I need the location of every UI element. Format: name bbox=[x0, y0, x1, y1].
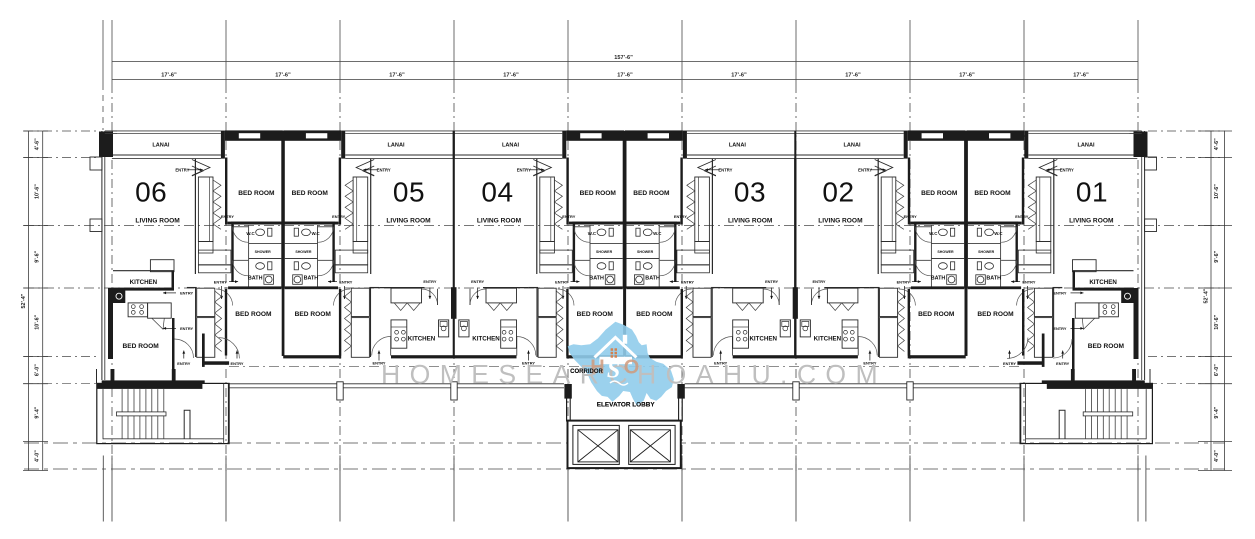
svg-text:ENTRY: ENTRY bbox=[1053, 291, 1066, 296]
svg-text:ENTRY: ENTRY bbox=[562, 214, 575, 219]
svg-text:ENTRY: ENTRY bbox=[904, 214, 917, 219]
svg-text:CORRIDOR: CORRIDOR bbox=[570, 369, 603, 375]
svg-text:BED ROOM: BED ROOM bbox=[238, 190, 275, 197]
svg-text:ENTRY: ENTRY bbox=[1053, 326, 1066, 331]
svg-text:17’-6”: 17’-6” bbox=[731, 73, 747, 79]
svg-text:BATH: BATH bbox=[645, 276, 660, 282]
svg-text:ENTRY: ENTRY bbox=[423, 279, 436, 284]
svg-text:01: 01 bbox=[1076, 176, 1108, 207]
svg-text:LIVING ROOM: LIVING ROOM bbox=[477, 218, 522, 225]
svg-text:H: H bbox=[590, 357, 604, 379]
svg-text:ENTRY: ENTRY bbox=[180, 326, 193, 331]
svg-text:W.C: W.C bbox=[994, 231, 1003, 236]
svg-text:ENTRY: ENTRY bbox=[897, 279, 910, 284]
svg-text:LIVING ROOM: LIVING ROOM bbox=[818, 218, 863, 225]
svg-text:LANAI: LANAI bbox=[152, 143, 170, 149]
svg-text:ENTRY: ENTRY bbox=[765, 279, 778, 284]
svg-text:9’-6”: 9’-6” bbox=[1214, 250, 1220, 262]
svg-text:06: 06 bbox=[135, 176, 167, 207]
svg-text:10’-6”: 10’-6” bbox=[35, 184, 41, 199]
svg-text:BED ROOM: BED ROOM bbox=[974, 190, 1011, 197]
svg-text:ENTRY: ENTRY bbox=[214, 279, 227, 284]
svg-text:ENTRY: ENTRY bbox=[1060, 168, 1074, 173]
svg-text:LIVING ROOM: LIVING ROOM bbox=[1069, 218, 1114, 225]
svg-text:ENTRY: ENTRY bbox=[332, 214, 345, 219]
svg-text:BED ROOM: BED ROOM bbox=[295, 311, 332, 318]
svg-text:4’-6”: 4’-6” bbox=[1214, 138, 1220, 150]
svg-text:BATH: BATH bbox=[248, 276, 263, 282]
svg-text:W.C: W.C bbox=[929, 231, 938, 236]
svg-text:BED ROOM: BED ROOM bbox=[636, 311, 673, 318]
svg-text:LIVING ROOM: LIVING ROOM bbox=[728, 218, 773, 225]
svg-text:BED ROOM: BED ROOM bbox=[577, 311, 614, 318]
svg-text:157’-6”: 157’-6” bbox=[614, 55, 633, 61]
svg-text:BATH: BATH bbox=[304, 276, 319, 282]
svg-text:10’-6”: 10’-6” bbox=[1214, 184, 1220, 199]
svg-text:LANAI: LANAI bbox=[843, 143, 861, 149]
svg-text:BATH: BATH bbox=[589, 276, 604, 282]
svg-text:S: S bbox=[607, 358, 620, 384]
svg-text:4’-0”: 4’-0” bbox=[35, 450, 41, 462]
svg-text:9’-6”: 9’-6” bbox=[35, 250, 41, 262]
svg-text:ENTRY: ENTRY bbox=[858, 168, 872, 173]
svg-text:ENTRY: ENTRY bbox=[180, 291, 193, 296]
svg-text:ENTRY: ENTRY bbox=[339, 279, 352, 284]
svg-text:LIVING ROOM: LIVING ROOM bbox=[135, 218, 180, 225]
svg-text:17’-6”: 17’-6” bbox=[503, 73, 519, 79]
svg-text:BED ROOM: BED ROOM bbox=[1088, 343, 1125, 350]
svg-text:ENTRY: ENTRY bbox=[1056, 361, 1069, 366]
svg-text:KITCHEN: KITCHEN bbox=[749, 335, 777, 342]
svg-text:ENTRY: ENTRY bbox=[681, 279, 694, 284]
svg-text:W.C: W.C bbox=[246, 231, 255, 236]
svg-text:ENTRY: ENTRY bbox=[517, 168, 531, 173]
svg-text:BED ROOM: BED ROOM bbox=[580, 190, 617, 197]
svg-text:17’-6”: 17’-6” bbox=[959, 73, 975, 79]
svg-text:BED ROOM: BED ROOM bbox=[977, 311, 1014, 318]
svg-text:04: 04 bbox=[481, 176, 513, 207]
svg-text:BATH: BATH bbox=[931, 276, 946, 282]
svg-text:52’-4”: 52’-4” bbox=[21, 293, 27, 308]
svg-text:ENTRY: ENTRY bbox=[718, 168, 732, 173]
svg-text:W.C: W.C bbox=[311, 231, 320, 236]
svg-text:LANAI: LANAI bbox=[1077, 143, 1095, 149]
svg-text:17’-6”: 17’-6” bbox=[389, 73, 405, 79]
svg-text:17’-6”: 17’-6” bbox=[275, 73, 291, 79]
svg-text:17’-6”: 17’-6” bbox=[1073, 73, 1089, 79]
svg-text:BED ROOM: BED ROOM bbox=[235, 311, 272, 318]
svg-text:BED ROOM: BED ROOM bbox=[633, 190, 670, 197]
svg-text:17’-6”: 17’-6” bbox=[617, 73, 633, 79]
svg-text:SHOWER: SHOWER bbox=[295, 250, 312, 254]
svg-text:BED ROOM: BED ROOM bbox=[918, 311, 955, 318]
svg-text:ENTRY: ENTRY bbox=[177, 361, 190, 366]
svg-text:17’-6”: 17’-6” bbox=[161, 73, 177, 79]
svg-text:LIVING ROOM: LIVING ROOM bbox=[386, 218, 431, 225]
svg-text:SHOWER: SHOWER bbox=[978, 250, 995, 254]
svg-text:05: 05 bbox=[393, 176, 425, 207]
svg-text:KITCHEN: KITCHEN bbox=[814, 335, 842, 342]
svg-text:KITCHEN: KITCHEN bbox=[408, 335, 436, 342]
svg-text:ENTRY: ENTRY bbox=[1003, 361, 1016, 366]
svg-text:ENTRY: ENTRY bbox=[471, 279, 484, 284]
svg-text:W.C: W.C bbox=[653, 231, 662, 236]
svg-text:ENTRY: ENTRY bbox=[230, 361, 243, 366]
svg-text:52’-4”: 52’-4” bbox=[1204, 288, 1210, 303]
svg-text:KITCHEN: KITCHEN bbox=[1089, 279, 1117, 286]
svg-text:ENTRY: ENTRY bbox=[1015, 214, 1028, 219]
svg-text:SHOWER: SHOWER bbox=[937, 250, 954, 254]
svg-text:ENTRY: ENTRY bbox=[812, 279, 825, 284]
svg-text:4’-6”: 4’-6” bbox=[35, 138, 41, 150]
svg-text:17’-6”: 17’-6” bbox=[845, 73, 861, 79]
svg-text:6’-0”: 6’-0” bbox=[1214, 364, 1220, 376]
svg-text:LANAI: LANAI bbox=[729, 143, 747, 149]
svg-text:LANAI: LANAI bbox=[387, 143, 405, 149]
svg-text:ENTRY: ENTRY bbox=[555, 279, 568, 284]
svg-text:BED ROOM: BED ROOM bbox=[921, 190, 958, 197]
svg-text:SHOWER: SHOWER bbox=[596, 250, 613, 254]
svg-text:ENTRY: ENTRY bbox=[377, 168, 391, 173]
svg-text:4’-0”: 4’-0” bbox=[1214, 450, 1220, 462]
svg-text:SHOWER: SHOWER bbox=[637, 250, 654, 254]
svg-text:6’-0”: 6’-0” bbox=[35, 364, 41, 376]
svg-text:LANAI: LANAI bbox=[502, 143, 520, 149]
svg-text:ENTRY: ENTRY bbox=[1022, 279, 1035, 284]
svg-text:02: 02 bbox=[822, 176, 854, 207]
svg-text:O: O bbox=[624, 357, 640, 379]
svg-text:KITCHEN: KITCHEN bbox=[472, 335, 500, 342]
svg-text:SHOWER: SHOWER bbox=[255, 250, 272, 254]
svg-text:9’-4”: 9’-4” bbox=[1214, 406, 1220, 418]
svg-text:ENTRY: ENTRY bbox=[175, 168, 189, 173]
svg-text:BED ROOM: BED ROOM bbox=[122, 343, 159, 350]
svg-text:ELEVATOR LOBBY: ELEVATOR LOBBY bbox=[597, 402, 656, 409]
svg-text:ENTRY: ENTRY bbox=[221, 214, 234, 219]
svg-text:10’-6”: 10’-6” bbox=[35, 314, 41, 329]
svg-text:BED ROOM: BED ROOM bbox=[292, 190, 329, 197]
svg-text:W.C: W.C bbox=[588, 231, 597, 236]
svg-text:BATH: BATH bbox=[986, 276, 1001, 282]
svg-text:10’-6”: 10’-6” bbox=[1214, 314, 1220, 329]
svg-text:9’-4”: 9’-4” bbox=[35, 406, 41, 418]
svg-text:ENTRY: ENTRY bbox=[674, 214, 687, 219]
svg-text:KITCHEN: KITCHEN bbox=[130, 279, 158, 286]
svg-text:03: 03 bbox=[734, 176, 766, 207]
